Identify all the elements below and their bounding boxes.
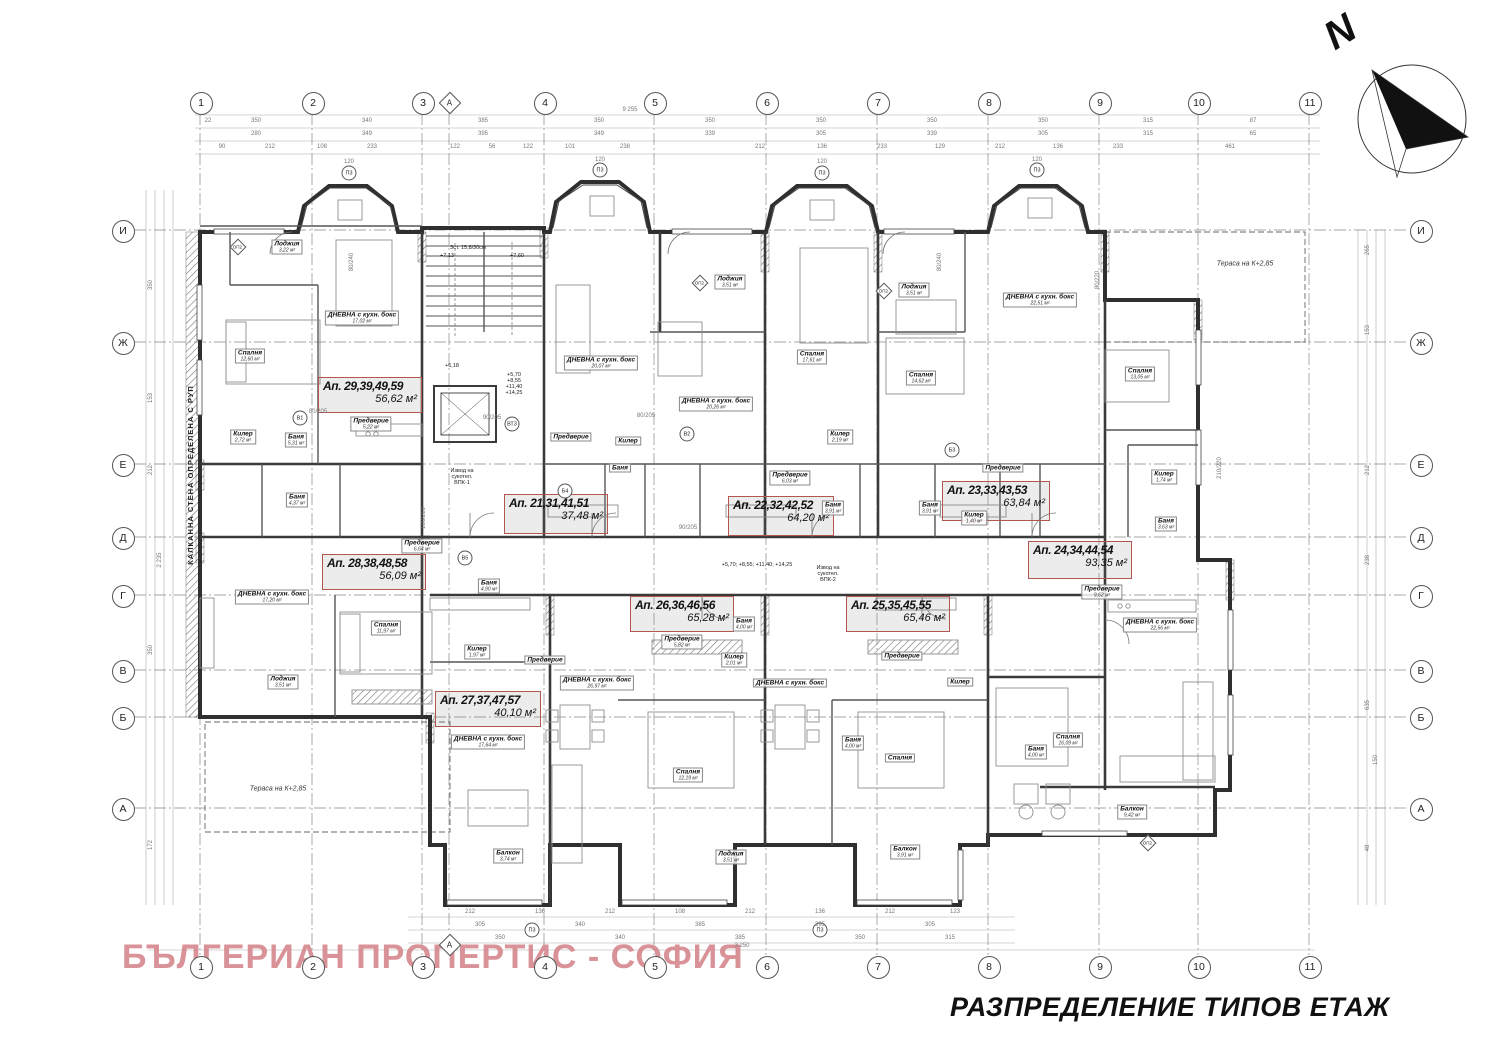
dimension-text-8: 350 <box>1038 118 1048 124</box>
grid-bubble-top-6[interactable]: 6 <box>756 92 779 115</box>
room-label-34: ДНЕВНА с кухн. бокс22,56 м² <box>1123 618 1197 633</box>
grid-bubble-right-5[interactable]: В <box>1410 660 1433 683</box>
room-area: 3,51 м² <box>722 283 738 289</box>
dimension-text-78: 90/205 <box>483 415 501 421</box>
room-label-42: Килер2,01 м² <box>721 653 747 668</box>
room-name: Предверие <box>985 465 1020 472</box>
room-label-7: Предверие <box>550 433 591 442</box>
dimension-text-30: 238 <box>620 144 630 150</box>
room-area: 6,03 м² <box>782 479 798 485</box>
annotation-2: +6,18 <box>445 363 459 369</box>
dimension-text-38: 461 <box>1225 144 1235 150</box>
grid-bubble-right-7[interactable]: А <box>1410 798 1433 821</box>
room-name: ДНЕВНА с кухн. бокс <box>328 312 396 319</box>
room-area: 17,02 м² <box>352 319 371 325</box>
fitting-П3-4: П3 <box>525 923 540 938</box>
dimension-text-65: 2 235 <box>157 552 163 567</box>
grid-bubble-left-4[interactable]: Г <box>112 585 135 608</box>
grid-bubble-top-1[interactable]: 1 <box>190 92 213 115</box>
dimension-text-14: 395 <box>478 131 488 137</box>
grid-bubble-top-9[interactable]: 9 <box>1089 92 1112 115</box>
annotation-5: Извод на сукотел. ВПК-1 <box>450 468 473 486</box>
room-name: Лоджия <box>901 284 926 291</box>
dimension-text-25: 233 <box>367 144 377 150</box>
fitting-Б4-10: Б4 <box>558 484 573 499</box>
dimension-text-60: 315 <box>945 935 955 941</box>
dimension-text-44: 136 <box>535 909 545 915</box>
grid-bubble-top-3[interactable]: 3 <box>412 92 435 115</box>
room-name: Баня <box>612 465 628 472</box>
dimension-text-53: 385 <box>695 922 705 928</box>
dimension-text-76: 80/240 <box>349 253 355 271</box>
room-label-33: Предверие9,62 м² <box>1081 585 1122 600</box>
dimension-text-69: 153 <box>1365 325 1371 335</box>
dimension-text-40: 120 <box>595 157 605 163</box>
room-name: ДНЕВНА с кухн. бокс <box>682 398 750 405</box>
dimension-text-10: 87 <box>1250 118 1257 124</box>
room-label-40: Лоджия3,51 м² <box>715 850 746 865</box>
dimension-text-73: 150 <box>1373 755 1379 765</box>
apartment-number: Ап. 24,34,44,54 <box>1033 543 1127 557</box>
room-name: Спалня <box>800 351 824 358</box>
grid-bubble-right-6[interactable]: Б <box>1410 707 1433 730</box>
dimension-text-63: 153 <box>148 393 154 403</box>
room-area: 4,37 м² <box>289 501 305 507</box>
fitting-Б3-9: Б3 <box>945 443 960 458</box>
room-name: Балкон <box>1120 806 1144 813</box>
annotation-1: +7,60 <box>510 253 524 259</box>
apartment-label-7[interactable]: Ап. 25,35,45,5565,46 м² <box>846 596 950 632</box>
annotation-0: +7,13 <box>440 253 454 259</box>
dimension-text-62: 350 <box>148 280 154 290</box>
room-label-43: Баня4,00 м² <box>733 617 755 632</box>
grid-bubble-top-8[interactable]: 8 <box>978 92 1001 115</box>
grid-bubble-bottom-5[interactable]: 5 <box>644 956 667 979</box>
room-name: ДНЕВНА с кухн. бокс <box>1126 619 1194 626</box>
room-area: 13,05 м² <box>1131 375 1150 381</box>
room-name: Килер <box>618 438 638 445</box>
grid-bubble-left-1[interactable]: Ж <box>112 332 135 355</box>
grid-bubble-top-4[interactable]: 4 <box>534 92 557 115</box>
room-label-16: Килер1,97 м² <box>464 645 490 660</box>
room-label-13: Лоджия3,51 м² <box>267 675 298 690</box>
room-label-12: Спалня11,97 м² <box>371 621 401 636</box>
dimension-text-71: 238 <box>1365 555 1371 565</box>
room-area: 3,63 м² <box>1158 525 1174 531</box>
room-label-25: Лоджия3,51 м² <box>898 283 929 298</box>
grid-bubble-bottom-11[interactable]: 11 <box>1299 956 1322 979</box>
room-label-35: Спалня16,09 м² <box>1053 733 1083 748</box>
dimension-text-21: 65 <box>1250 131 1257 137</box>
apartment-label-4[interactable]: Ап. 24,34,44,5493,35 м² <box>1028 541 1132 579</box>
room-label-24: Баня3,91 м² <box>919 501 941 516</box>
dimension-text-9: 315 <box>1143 118 1153 124</box>
drawing-title: РАЗПРЕДЕЛЕНИЕ ТИПОВ ЕТАЖ <box>950 992 1350 1023</box>
room-area: 12,19 м² <box>679 776 698 782</box>
fitting-code: ОП2 <box>879 289 888 294</box>
dimension-text-37: 233 <box>1113 144 1123 150</box>
room-area: 4,90 м² <box>481 587 497 593</box>
grid-bubble-right-1[interactable]: Ж <box>1410 332 1433 355</box>
dimension-text-67: 172 <box>148 840 154 850</box>
room-name: ДНЕВНА с кухн. бокс <box>1006 294 1074 301</box>
grid-axis-aux-label: А <box>447 99 452 108</box>
apartment-label-8[interactable]: Ап. 27,37,47,5740,10 м² <box>435 691 541 727</box>
room-label-38: ДНЕВНА с кухн. бокс26,97 м² <box>560 676 634 691</box>
room-name: Килер <box>467 646 487 653</box>
dimension-text-36: 136 <box>1053 144 1063 150</box>
room-name: Предверие <box>553 434 588 441</box>
room-name: ДНЕВНА с кухн. бокс <box>756 680 824 687</box>
fitting-ОП2-14: ОП2 <box>876 283 893 300</box>
room-label-44: ДНЕВНА с кухн. бокс17,64 м² <box>451 735 525 750</box>
room-area: 26,97 м² <box>587 684 606 690</box>
fitting-В2-8: В2 <box>680 427 695 442</box>
room-name: Баня <box>845 737 861 744</box>
room-name: Предверие <box>664 636 699 643</box>
dimension-text-80: 80/205 <box>637 413 655 419</box>
room-area: 4,00 м² <box>1028 753 1044 759</box>
dimension-text-79: 100/210 <box>421 507 427 529</box>
apartment-label-5[interactable]: Ап. 28,38,48,5856,09 м² <box>322 554 426 590</box>
room-label-2: ДНЕВНА с кухн. бокс17,02 м² <box>325 311 399 326</box>
room-area: 2,72 м² <box>235 438 251 444</box>
grid-bubble-top-2[interactable]: 2 <box>302 92 325 115</box>
room-label-15: Баня4,90 м² <box>478 579 500 594</box>
apartment-area: 40,10 м² <box>494 707 536 719</box>
room-name: Лоджия <box>274 241 299 248</box>
dimension-text-46: 108 <box>675 909 685 915</box>
dimension-text-49: 212 <box>885 909 895 915</box>
room-area: 4,00 м² <box>736 625 752 631</box>
grid-bubble-top-11[interactable]: 11 <box>1299 92 1322 115</box>
room-area: 16,09 м² <box>1059 741 1078 747</box>
room-area: 12,60 м² <box>241 357 260 363</box>
dimension-text-45: 212 <box>605 909 615 915</box>
room-label-45: Балкон3,74 м² <box>493 849 523 864</box>
apartment-label-0[interactable]: Ап. 29,39,49,5956,62 м² <box>318 377 422 413</box>
grid-axis-aux-label: А <box>447 941 452 950</box>
dimension-text-33: 233 <box>877 144 887 150</box>
grid-bubble-right-0[interactable]: И <box>1410 220 1433 243</box>
dimension-text-75: 210/220 <box>1217 457 1223 479</box>
dimension-text-72: 635 <box>1365 700 1371 710</box>
grid-bubble-bottom-3[interactable]: 3 <box>412 956 435 979</box>
room-name: Предверие <box>884 653 919 660</box>
grid-bubble-left-6[interactable]: Б <box>112 707 135 730</box>
room-label-3: Килер2,72 м² <box>230 430 256 445</box>
dimension-text-61: 3 250 <box>734 943 749 949</box>
dimension-text-7: 350 <box>927 118 937 124</box>
room-area: 3,51 м² <box>723 858 739 864</box>
dimension-text-57: 340 <box>615 935 625 941</box>
apartment-label-2[interactable]: Ап. 22,32,42,5264,20 м² <box>728 496 834 536</box>
room-name: Спалня <box>1128 368 1152 375</box>
dimension-text-64: 212 <box>148 465 154 475</box>
room-label-41: Предверие5,82 м² <box>661 635 702 650</box>
room-label-11: ДНЕВНА с кухн. бокс17,20 м² <box>235 590 309 605</box>
apartment-area: 65,46 м² <box>903 612 945 624</box>
grid-bubble-left-7[interactable]: А <box>112 798 135 821</box>
room-label-10: Баня4,37 м² <box>286 493 308 508</box>
room-label-36: Балкон9,42 м² <box>1117 805 1147 820</box>
grid-bubble-bottom-7[interactable]: 7 <box>867 956 890 979</box>
room-name: Предверие <box>353 418 388 425</box>
room-label-30: Спалня13,05 м² <box>1125 367 1155 382</box>
dimension-text-24: 108 <box>317 144 327 150</box>
grid-bubble-left-0[interactable]: И <box>112 220 135 243</box>
dimension-text-15: 349 <box>594 131 604 137</box>
dimension-text-48: 136 <box>815 909 825 915</box>
fitting-ОП2-12: ОП2 <box>230 239 247 256</box>
room-name: Килер <box>1154 471 1174 478</box>
grid-bubble-bottom-4[interactable]: 4 <box>534 956 557 979</box>
room-name: Баня <box>289 494 305 501</box>
room-label-21: Килер2,19 м² <box>827 430 853 445</box>
room-label-31: Килер1,74 м² <box>1151 470 1177 485</box>
dimension-text-55: 305 <box>925 922 935 928</box>
room-label-0: Лоджия3,22 м² <box>271 240 302 255</box>
room-area: 5,82 м² <box>674 643 690 649</box>
room-label-9: Баня <box>609 464 631 473</box>
dimension-text-1: 350 <box>251 118 261 124</box>
annotation-3: +5,70 +8,55 +11,40 +14,25 <box>506 372 523 396</box>
grid-bubble-top-5[interactable]: 5 <box>644 92 667 115</box>
room-label-23: Баня3,91 м² <box>822 501 844 516</box>
room-name: Баня <box>288 434 304 441</box>
room-name: Лоджия <box>270 676 295 683</box>
annotation-8: 3ст. 15,8/30см <box>450 245 486 251</box>
room-area: 20,26 м² <box>706 405 725 411</box>
dimension-text-39: 120 <box>344 159 354 165</box>
annotation-6: Извод на сукотел. ВПК-2 <box>816 565 839 583</box>
apartment-area: 37,48 м² <box>561 510 603 522</box>
apartment-label-1[interactable]: Ап. 21,31,41,5137,48 м² <box>504 494 608 534</box>
apartment-area: 56,09 м² <box>379 570 421 582</box>
apartment-area: 63,84 м² <box>1003 497 1045 509</box>
room-label-26: ДНЕВНА с кухн. бокс22,51 м² <box>1003 293 1077 308</box>
dimension-text-28: 122 <box>523 144 533 150</box>
room-label-29: Килер1,40 м² <box>961 511 987 526</box>
room-name: Предверие <box>404 540 439 547</box>
room-name: Спалня <box>676 769 700 776</box>
room-label-18: Лоджия3,51 м² <box>714 275 745 290</box>
room-label-8: Килер <box>615 437 641 446</box>
dimension-text-17: 305 <box>816 131 826 137</box>
dimension-text-74: 48 <box>1365 845 1371 852</box>
dimension-text-12: 280 <box>251 131 261 137</box>
dimension-text-6: 350 <box>816 118 826 124</box>
dimension-text-68: 265 <box>1365 245 1371 255</box>
dimension-text-4: 350 <box>594 118 604 124</box>
fitting-В1-7: В1 <box>293 411 308 426</box>
room-name: Лоджия <box>718 851 743 858</box>
room-name: ДНЕВНА с кухн. бокс <box>238 591 306 598</box>
floor-plan-canvas: БЪЛГЕРИАН ПРОПЕРТИС - СОФИЯ РАЗПРЕДЕЛЕНИ… <box>0 0 1500 1061</box>
room-name: Баня <box>1158 518 1174 525</box>
room-area: 3,51 м² <box>906 291 922 297</box>
grid-bubble-bottom-2[interactable]: 2 <box>302 956 325 979</box>
room-name: Спалня <box>888 755 912 762</box>
grid-bubble-bottom-9[interactable]: 9 <box>1089 956 1112 979</box>
room-area: 17,64 м² <box>478 743 497 749</box>
dimension-text-54: 395 <box>815 922 825 928</box>
room-name: ДНЕВНА с кухн. бокс <box>567 357 635 364</box>
fitting-П3-1: П3 <box>593 163 608 178</box>
dimension-text-59: 350 <box>855 935 865 941</box>
room-name: Спалня <box>1056 734 1080 741</box>
fitting-code: ОП2 <box>1143 841 1152 846</box>
room-name: ДНЕВНА с кухн. бокс <box>563 677 631 684</box>
room-name: Лоджия <box>717 276 742 283</box>
dimension-text-77: 80/205 <box>309 409 327 415</box>
room-area: 4,00 м² <box>845 744 861 750</box>
room-label-39: Спалня12,19 м² <box>673 768 703 783</box>
fitting-ОП2-13: ОП2 <box>692 275 709 292</box>
dimension-text-0: 22 <box>205 118 212 124</box>
apartment-area: 65,28 м² <box>687 612 729 624</box>
grid-bubble-left-2[interactable]: Е <box>112 454 135 477</box>
fitting-П3-2: П3 <box>815 166 830 181</box>
room-label-19: ДНЕВНА с кухн. бокс20,26 м² <box>679 397 753 412</box>
room-name: Килер <box>950 679 970 686</box>
dimension-text-58: 385 <box>735 935 745 941</box>
room-name: Баня <box>922 502 938 509</box>
room-area: 3,91 м² <box>897 853 913 859</box>
room-label-51: Балкон3,91 м² <box>890 845 920 860</box>
grid-bubble-top-10[interactable]: 10 <box>1188 92 1211 115</box>
grid-bubble-bottom-10[interactable]: 10 <box>1188 956 1211 979</box>
room-name: ДНЕВНА с кухн. бокс <box>454 736 522 743</box>
room-name: Килер <box>724 654 744 661</box>
terrace-label-1: Тераса на К+2,85 <box>1217 261 1274 268</box>
grid-bubble-bottom-8[interactable]: 8 <box>978 956 1001 979</box>
room-name: Баня <box>481 580 497 587</box>
room-area: 11,97 м² <box>377 629 396 635</box>
grid-bubble-right-4[interactable]: Г <box>1410 585 1433 608</box>
dimension-text-19: 305 <box>1038 131 1048 137</box>
apartment-number: Ап. 28,38,48,58 <box>327 556 421 570</box>
room-label-49: Килер <box>947 678 973 687</box>
dimension-text-81: 90/205 <box>679 525 697 531</box>
room-label-50: Баня4,00 м² <box>842 736 864 751</box>
dimension-text-43: 212 <box>465 909 475 915</box>
room-area: 5,31 м² <box>288 441 304 447</box>
room-name: Предверие <box>527 657 562 664</box>
grid-bubble-right-3[interactable]: Д <box>1410 527 1433 550</box>
dimension-text-41: 120 <box>817 159 827 165</box>
dimension-text-3: 385 <box>478 118 488 124</box>
fitting-code: ОП2 <box>695 281 704 286</box>
apartment-number: Ап. 27,37,47,57 <box>440 693 536 707</box>
grid-bubble-bottom-1[interactable]: 1 <box>190 956 213 979</box>
dimension-text-50: 123 <box>950 909 960 915</box>
room-label-22: Предверие6,03 м² <box>769 471 810 486</box>
room-name: Спалня <box>238 350 262 357</box>
room-area: 1,74 м² <box>1156 478 1172 484</box>
dimension-text-51: 305 <box>475 922 485 928</box>
dimension-text-83: 80/240 <box>937 253 943 271</box>
room-name: Предверие <box>772 472 807 479</box>
room-name: Балкон <box>893 846 917 853</box>
room-area: 3,91 м² <box>825 509 841 515</box>
room-label-32: Баня3,63 м² <box>1155 517 1177 532</box>
room-name: Балкон <box>496 850 520 857</box>
grid-bubble-left-5[interactable]: В <box>112 660 135 683</box>
apartment-number: Ап. 25,35,45,55 <box>851 598 945 612</box>
room-area: 14,62 м² <box>912 379 931 385</box>
room-label-37: Баня4,00 м² <box>1025 745 1047 760</box>
room-area: 3,22 м² <box>279 248 295 254</box>
fitting-ОП2-15: ОП2 <box>1140 835 1157 852</box>
grid-bubble-top-7[interactable]: 7 <box>867 92 890 115</box>
dimension-text-31: 212 <box>755 144 765 150</box>
dimension-text-13: 349 <box>362 131 372 137</box>
room-label-17: Предверие <box>524 656 565 665</box>
dimension-text-35: 212 <box>995 144 1005 150</box>
apartment-label-6[interactable]: Ап. 26,36,46,5665,28 м² <box>630 596 734 632</box>
fitting-П3-3: П3 <box>1030 163 1045 178</box>
terrace-label-0: Тераса на К+2,85 <box>250 786 307 793</box>
dimension-text-23: 212 <box>265 144 275 150</box>
room-label-48: Предверие <box>881 652 922 661</box>
room-name: Килер <box>964 512 984 519</box>
fitting-code: ОП2 <box>233 245 242 250</box>
room-label-28: Предверие <box>982 464 1023 473</box>
grid-axis-aux-top[interactable]: А <box>439 92 462 115</box>
room-area: 9,62 м² <box>1094 593 1110 599</box>
room-area: 6,64 м² <box>414 547 430 553</box>
room-label-20: Спалня17,61 м² <box>797 350 827 365</box>
dimension-text-47: 212 <box>745 909 755 915</box>
room-area: 2,01 м² <box>726 661 742 667</box>
grid-bubble-bottom-6[interactable]: 6 <box>756 956 779 979</box>
fitting-П3-0: П3 <box>342 166 357 181</box>
annotation-4: +5,70; +8,55; +11,40; +14,25 <box>722 562 793 568</box>
apartment-area: 56,62 м² <box>375 393 417 405</box>
fitting-В5-11: В5 <box>458 551 473 566</box>
room-name: Килер <box>233 431 253 438</box>
room-name: Килер <box>830 431 850 438</box>
north-label: N <box>1316 6 1364 59</box>
text-overlay: БЪЛГЕРИАН ПРОПЕРТИС - СОФИЯ РАЗПРЕДЕЛЕНИ… <box>0 0 1500 1061</box>
dimension-text-70: 212 <box>1365 465 1371 475</box>
dimension-text-22: 90 <box>219 144 226 150</box>
apartment-number: Ап. 23,33,43,53 <box>947 483 1045 497</box>
room-area: 3,74 м² <box>500 857 516 863</box>
dimension-text-11: 9 255 <box>622 107 637 113</box>
apartment-number: Ап. 21,31,41,51 <box>509 496 603 510</box>
grid-bubble-left-3[interactable]: Д <box>112 527 135 550</box>
dimension-text-5: 350 <box>705 118 715 124</box>
room-label-14: Предверие6,64 м² <box>401 539 442 554</box>
grid-bubble-right-2[interactable]: Е <box>1410 454 1433 477</box>
room-name: Баня <box>1028 746 1044 753</box>
room-area: 17,20 м² <box>262 598 281 604</box>
room-area: 3,91 м² <box>922 509 938 515</box>
room-name: Спалня <box>374 622 398 629</box>
apartment-label-3[interactable]: Ап. 23,33,43,5363,84 м² <box>942 481 1050 521</box>
room-area: 17,61 м² <box>803 358 822 364</box>
room-area: 1,40 м² <box>966 519 982 525</box>
dimension-text-82: 80/220 <box>1095 271 1101 289</box>
dimension-text-2: 340 <box>362 118 372 124</box>
dimension-text-16: 339 <box>705 131 715 137</box>
dimension-text-29: 101 <box>565 144 575 150</box>
room-area: 22,56 м² <box>1150 626 1169 632</box>
annotation-7: КАЛКАННА СТЕНА ОПРЕДЕЛЕНА С РУП <box>188 385 194 565</box>
apartment-area: 93,35 м² <box>1085 557 1127 569</box>
